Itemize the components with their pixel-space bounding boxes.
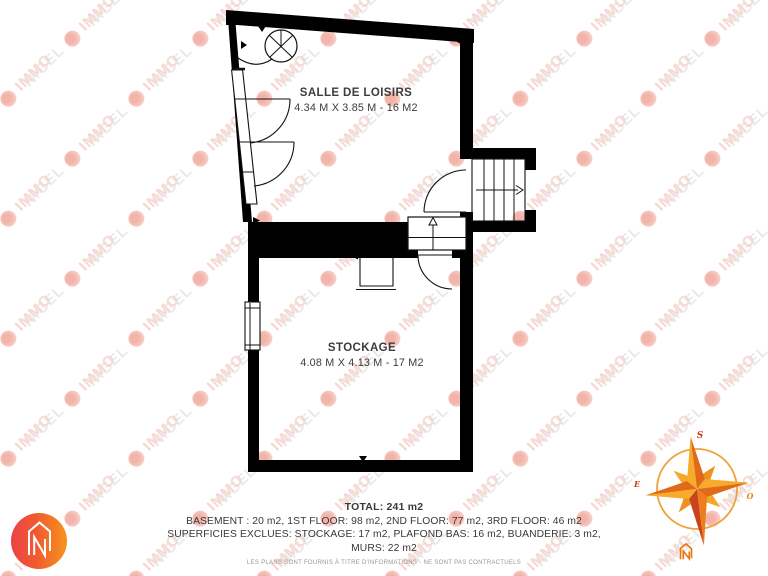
room-dimensions: 4.08 M X 4.13 M - 17 M2 [252,356,472,371]
compass-label-south: S [697,431,704,441]
total-area: TOTAL: 241 m2 [0,501,768,513]
room-name: STOCKAGE [252,341,472,356]
area-summary: TOTAL: 241 m2 BASEMENT : 20 m2, 1ST FLOO… [0,501,768,566]
small-stair-up [408,217,466,250]
excluded-areas: SUPERFICIES EXCLUES: STOCKAGE: 17 m2, PL… [0,529,768,540]
floorplan-page: NIGELIMMONIGELIMMONIGELIMMONIGELIMMONIGE… [0,0,768,576]
floors-areas: BASEMENT : 20 m2, 1ST FLOOR: 98 m2, 2ND … [0,516,768,527]
compass-label-west: O [747,491,754,501]
circular-fixture [265,30,297,62]
room-label-stockage: STOCKAGE 4.08 M X 4.13 M - 17 M2 [252,341,472,371]
disclaimer: LES PLANS SONT FOURNIS À TITRE D'INFORMA… [0,560,768,566]
room-dimensions: 4.34 M X 3.85 M - 16 M2 [246,101,466,116]
chimney-niche [356,258,396,290]
room-label-salle-de-loisirs: SALLE DE LOISIRS 4.34 M X 3.85 M - 16 M2 [246,86,466,116]
walls [226,10,536,472]
room-name: SALLE DE LOISIRS [246,86,466,101]
excluded-areas-cont: MURS: 22 m2 [0,543,768,554]
staircase-landing [472,159,525,221]
compass-label-east: E [633,479,641,489]
